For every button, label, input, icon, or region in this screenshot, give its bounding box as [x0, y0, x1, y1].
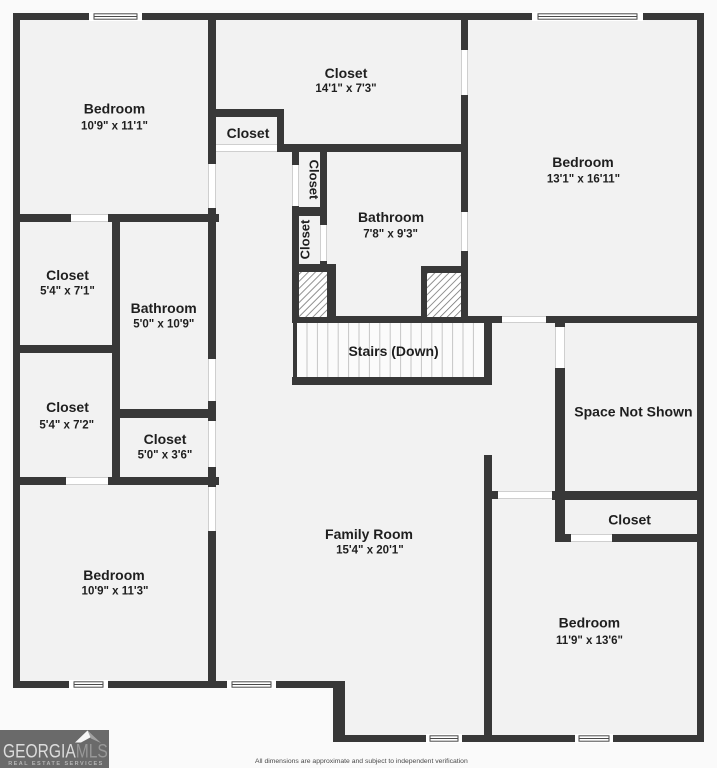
svg-text:10'9" x 11'1": 10'9" x 11'1" — [81, 121, 148, 133]
svg-text:Closet: Closet — [325, 65, 368, 81]
svg-text:Space Not Shown: Space Not Shown — [574, 404, 692, 420]
svg-text:Closet: Closet — [608, 512, 651, 528]
svg-text:Bedroom: Bedroom — [83, 567, 144, 583]
svg-text:Bathroom: Bathroom — [358, 209, 424, 225]
svg-text:Closet: Closet — [46, 399, 89, 415]
svg-text:Closet: Closet — [144, 431, 187, 447]
svg-text:11'9" x 13'6": 11'9" x 13'6" — [556, 635, 623, 647]
svg-text:Bedroom: Bedroom — [552, 154, 613, 170]
svg-text:GEORGIAMLS: GEORGIAMLS — [3, 740, 108, 762]
svg-text:5'4" x 7'2": 5'4" x 7'2" — [39, 420, 94, 432]
svg-text:Closet: Closet — [227, 125, 270, 141]
svg-text:5'4" x 7'1": 5'4" x 7'1" — [40, 286, 95, 298]
svg-text:Stairs (Down): Stairs (Down) — [348, 343, 438, 359]
svg-text:Closet: Closet — [298, 219, 313, 259]
svg-text:Bathroom: Bathroom — [131, 300, 197, 316]
svg-text:13'1" x 16'11": 13'1" x 16'11" — [547, 174, 620, 186]
svg-text:Closet: Closet — [46, 267, 89, 283]
svg-text:All dimensions are approximate: All dimensions are approximate and subje… — [255, 758, 468, 765]
svg-text:Family Room: Family Room — [325, 526, 413, 542]
svg-text:Closet: Closet — [307, 160, 322, 200]
svg-text:5'0" x 3'6": 5'0" x 3'6" — [138, 450, 193, 462]
svg-text:14'1" x 7'3": 14'1" x 7'3" — [315, 83, 376, 95]
svg-text:Bedroom: Bedroom — [84, 101, 145, 117]
svg-text:7'8" x 9'3": 7'8" x 9'3" — [363, 229, 418, 241]
svg-text:10'9" x 11'3": 10'9" x 11'3" — [82, 586, 149, 598]
svg-text:15'4" x 20'1": 15'4" x 20'1" — [336, 545, 404, 557]
svg-text:REAL ESTATE SERVICES: REAL ESTATE SERVICES — [8, 761, 104, 767]
svg-text:Bedroom: Bedroom — [559, 615, 620, 631]
svg-text:5'0" x 10'9": 5'0" x 10'9" — [133, 319, 194, 331]
